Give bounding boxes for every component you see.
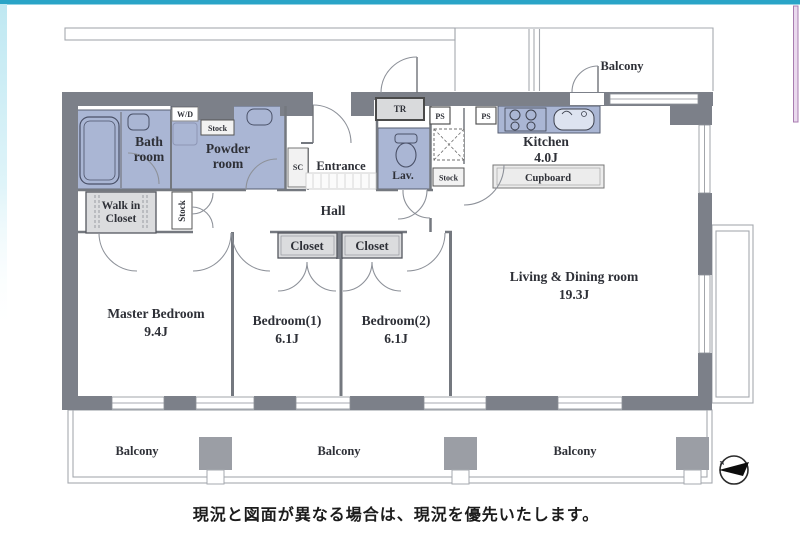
top-balcony-divider <box>529 29 540 91</box>
bedroom2-size: 6.1J <box>384 331 408 346</box>
master-bedroom-door-arc <box>193 233 231 271</box>
closet1-label: Closet <box>290 239 324 253</box>
trunk-room-door-arc <box>381 57 417 93</box>
bath-label-line1: Bath <box>135 134 163 149</box>
closet2-label: Closet <box>355 239 389 253</box>
washer-dryer-label: W/D <box>177 110 193 119</box>
entrance-step <box>306 173 376 189</box>
pillar-2-gap <box>452 470 469 484</box>
compass-north-label: N <box>720 460 725 467</box>
shoe-closet-label: SC <box>293 163 303 172</box>
pillar-2 <box>444 437 477 470</box>
lavatory-door-arc <box>398 190 427 219</box>
master-bedroom-size: 9.4J <box>144 324 168 339</box>
walkin-closet-label-line2: Closet <box>106 213 137 225</box>
kitchen-sink-icon <box>554 109 594 130</box>
bottom-balcony-right-label: Balcony <box>553 444 597 458</box>
living-dining-size: 19.3J <box>559 287 590 302</box>
bottom-balcony-left-label: Balcony <box>115 444 159 458</box>
top-balcony-outline <box>455 28 713 91</box>
powder-label-line2: room <box>213 156 244 171</box>
front-door-arc <box>313 105 351 143</box>
bedroom1-size: 6.1J <box>275 331 299 346</box>
lavatory-label: Lav. <box>392 170 414 182</box>
stock-kitchen-label: Stock <box>439 174 459 183</box>
living-dining-label: Living & Dining room <box>510 269 639 284</box>
pillar-3-gap <box>684 470 701 484</box>
bath-label-line2: room <box>134 149 165 164</box>
bedroom2-door-arc <box>407 233 445 271</box>
entrance-label: Entrance <box>316 159 366 173</box>
walkin-closet-door-arc <box>99 233 137 271</box>
top-balcony-label: Balcony <box>600 59 644 73</box>
stock-hall-label: Stock <box>177 200 187 222</box>
top-accent-bar <box>0 0 800 5</box>
bedroom1-door-arc <box>232 233 270 271</box>
bottom-balcony-inner-line <box>73 410 707 477</box>
master-bedroom-label: Master Bedroom <box>107 306 205 321</box>
balcony-door-arc <box>572 66 598 92</box>
closet1-doors-arc <box>278 262 336 291</box>
corridor-outline <box>65 28 455 40</box>
bottom-balcony-center-label: Balcony <box>317 444 361 458</box>
compass: N <box>719 456 749 484</box>
pillar-1-gap <box>207 470 224 484</box>
hall-door-arc <box>403 190 430 218</box>
pipe-space-right-label: PS <box>481 112 491 121</box>
kitchen-size: 4.0J <box>534 150 558 165</box>
pipe-space-left-label: PS <box>435 112 445 121</box>
side-balcony-inner-line <box>716 231 749 397</box>
pillar-3 <box>676 437 709 470</box>
floorplan-page: N Bath room Powder room Walk in Closet E… <box>0 0 800 537</box>
walkin-closet-label-line1: Walk in <box>102 200 141 212</box>
left-accent-gradient <box>0 4 7 334</box>
side-balcony-outline <box>712 225 753 403</box>
bedroom1-label: Bedroom(1) <box>253 313 322 328</box>
bottom-balcony-outline <box>68 410 712 483</box>
disclaimer-caption: 現況と図面が異なる場合は、現況を優先いたします。 <box>193 505 599 524</box>
hall-label: Hall <box>321 203 346 218</box>
hall-stock-doors-arc <box>192 193 213 228</box>
bedroom2-label: Bedroom(2) <box>362 313 431 328</box>
right-accent-bar <box>794 6 799 122</box>
powder-label-line1: Powder <box>206 141 250 156</box>
pillar-1 <box>199 437 232 470</box>
trunk-room-label: TR <box>394 104 407 114</box>
cupboard-label: Cupboard <box>525 173 571 184</box>
closet2-doors-arc <box>343 262 401 291</box>
balcony-door-opening <box>570 93 604 105</box>
floorplan-drawing: N Bath room Powder room Walk in Closet E… <box>0 0 800 537</box>
stock-powder-label: Stock <box>208 124 228 133</box>
kitchen-label: Kitchen <box>523 134 569 149</box>
